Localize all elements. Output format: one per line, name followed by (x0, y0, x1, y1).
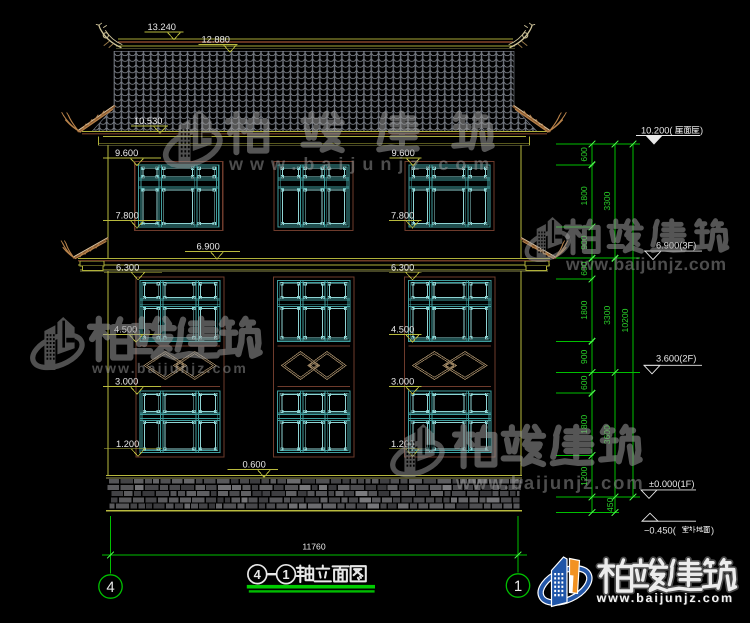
svg-text:6.300: 6.300 (116, 262, 139, 272)
svg-text:4: 4 (106, 579, 114, 596)
svg-text:−0.450(: −0.450( (644, 526, 677, 536)
svg-text:1.200: 1.200 (116, 439, 139, 449)
svg-text:www.baijunjz.com: www.baijunjz.com (565, 254, 727, 274)
svg-text:7.800: 7.800 (391, 211, 414, 221)
svg-text:www.baijunjz.com: www.baijunjz.com (228, 154, 496, 174)
svg-text:1: 1 (282, 567, 289, 582)
svg-text:600: 600 (579, 147, 589, 162)
svg-text:4.500: 4.500 (391, 325, 414, 335)
svg-text:6.900: 6.900 (197, 242, 220, 252)
svg-text:7.800: 7.800 (116, 211, 139, 221)
svg-text:3300: 3300 (602, 306, 612, 325)
svg-text:): ) (711, 526, 714, 536)
svg-text:9.600: 9.600 (115, 148, 138, 158)
svg-text:10.530: 10.530 (134, 116, 162, 126)
svg-text:4: 4 (254, 567, 262, 582)
svg-text:6.300: 6.300 (391, 262, 414, 272)
svg-text:12.880: 12.880 (202, 35, 230, 45)
svg-text:www.baijunjz.com: www.baijunjz.com (596, 591, 734, 605)
svg-text:450: 450 (605, 497, 615, 512)
svg-text:3300: 3300 (602, 191, 612, 210)
svg-text:11760: 11760 (302, 542, 325, 552)
svg-text:3.000: 3.000 (115, 377, 138, 387)
svg-text:1800: 1800 (579, 300, 589, 319)
svg-text:600: 600 (579, 375, 589, 390)
svg-text:): ) (700, 126, 703, 136)
svg-text:1: 1 (514, 578, 522, 595)
svg-text:900: 900 (579, 349, 589, 364)
svg-text:3.000: 3.000 (391, 377, 414, 387)
svg-text:10.200(: 10.200( (641, 126, 673, 136)
svg-text:13.240: 13.240 (148, 22, 176, 32)
svg-text:3.600(2F): 3.600(2F) (656, 354, 696, 364)
svg-text:10200: 10200 (620, 308, 630, 332)
svg-text:www.baijunjz.com: www.baijunjz.com (91, 360, 248, 376)
svg-text:www.baijunjz.com: www.baijunjz.com (455, 472, 644, 493)
svg-text:±0.000(1F): ±0.000(1F) (649, 479, 694, 489)
svg-text:0.600: 0.600 (243, 460, 266, 470)
svg-text:1800: 1800 (579, 186, 589, 205)
